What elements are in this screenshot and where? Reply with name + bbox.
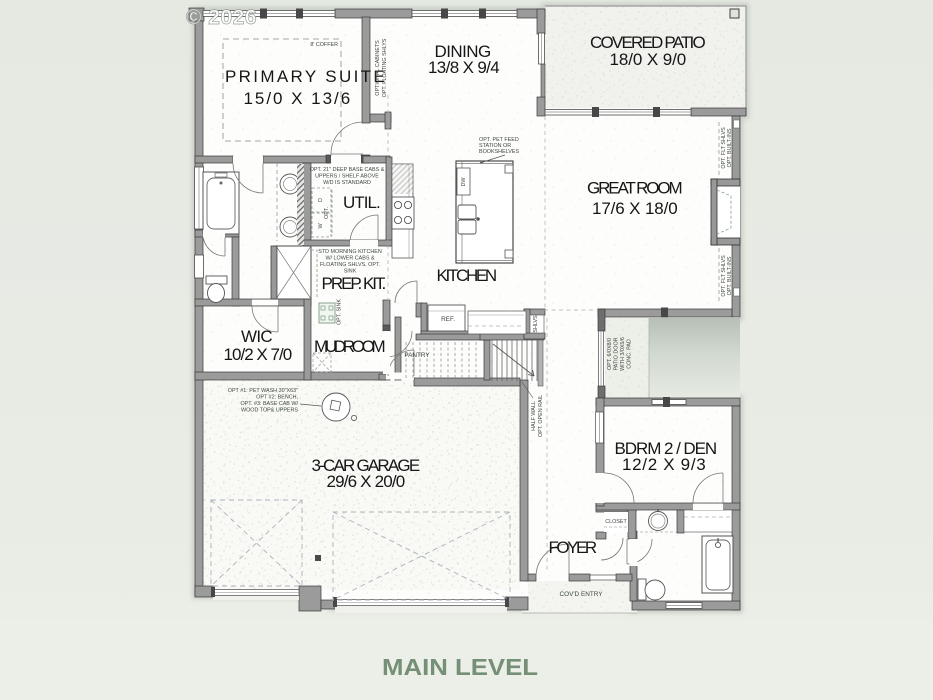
svg-text:D: D: [318, 198, 324, 202]
svg-text:PANTRY: PANTRY: [404, 352, 430, 359]
svg-text:COV'D ENTRY: COV'D ENTRY: [559, 591, 603, 598]
svg-text:W/D IS STANDARD: W/D IS STANDARD: [323, 180, 371, 186]
svg-text:OPT. BUILT-INS: OPT. BUILT-INS: [727, 128, 733, 167]
svg-text:OPT. BUILT-INS: OPT. BUILT-INS: [727, 256, 733, 295]
svg-text:FOYER: FOYER: [549, 538, 598, 557]
svg-text:SHLVS: SHLVS: [533, 315, 539, 333]
svg-text:© 2026: © 2026: [186, 6, 257, 29]
svg-text:18/0 X 9/0: 18/0 X 9/0: [610, 50, 687, 69]
svg-text:PATIO DOOR: PATIO DOOR: [614, 337, 620, 370]
svg-text:OPTIONAL CABINETS: OPTIONAL CABINETS: [375, 40, 381, 96]
svg-text:FLOATING SHLVS, OPT.: FLOATING SHLVS, OPT.: [320, 262, 380, 268]
svg-text:WIC: WIC: [241, 327, 273, 346]
svg-text:REF.: REF.: [441, 316, 455, 323]
svg-text:29/6 X 20/0: 29/6 X 20/0: [327, 472, 406, 491]
svg-text:CONC. PAD: CONC. PAD: [627, 339, 633, 369]
svg-text:WOOD TOP& UPPERS: WOOD TOP& UPPERS: [241, 408, 298, 414]
svg-text:BOOKSHELVES: BOOKSHELVES: [479, 149, 519, 155]
svg-text:OPT. FLOATING SHLYS: OPT. FLOATING SHLYS: [382, 38, 388, 97]
svg-text:MUDROOM: MUDROOM: [314, 337, 386, 356]
svg-text:UPPERS / SHELF ABOVE: UPPERS / SHELF ABOVE: [315, 174, 379, 180]
svg-text:SINK: SINK: [344, 269, 357, 275]
svg-text:UTIL.: UTIL.: [343, 193, 381, 212]
svg-text:WITH 3/0X5/6: WITH 3/0X5/6: [620, 337, 626, 371]
svg-text:W/ LOWER CABS &: W/ LOWER CABS &: [325, 256, 375, 262]
svg-text:MAIN LEVEL: MAIN LEVEL: [382, 654, 538, 680]
svg-text:KITCHEN: KITCHEN: [437, 266, 498, 285]
svg-text:OPT #2: BENCH,: OPT #2: BENCH,: [256, 395, 298, 401]
svg-text:8' COFFER: 8' COFFER: [310, 42, 338, 48]
svg-text:10/2 X 7/0: 10/2 X 7/0: [224, 345, 293, 364]
svg-text:CLOSET: CLOSET: [605, 519, 627, 525]
svg-text:HALF WALL: HALF WALL: [531, 401, 537, 431]
svg-text:OPT. SINK: OPT. SINK: [337, 299, 343, 325]
svg-text:OPT #1: PET WASH 30"X63": OPT #1: PET WASH 30"X63": [228, 388, 298, 394]
svg-text:13/8 X 9/4: 13/8 X 9/4: [428, 58, 500, 77]
svg-text:GREAT ROOM: GREAT ROOM: [587, 179, 683, 198]
svg-text:15/0 X 13/6: 15/0 X 13/6: [244, 89, 351, 108]
svg-text:OPT. 21" DEEP BASE CABS &: OPT. 21" DEEP BASE CABS &: [310, 167, 385, 173]
svg-text:OPT. OPEN RAIL: OPT. OPEN RAIL: [538, 395, 544, 437]
svg-text:OPT.: OPT.: [324, 207, 330, 219]
svg-text:17/6 X 18/0: 17/6 X 18/0: [592, 199, 678, 218]
svg-text:STD MORNING KITCHEN: STD MORNING KITCHEN: [318, 249, 382, 255]
svg-text:PREP. KIT.: PREP. KIT.: [322, 274, 387, 293]
svg-text:OPT. 6/0X8/0: OPT. 6/0X8/0: [607, 338, 613, 370]
svg-text:12/2 X 9/3: 12/2 X 9/3: [622, 455, 706, 474]
svg-text:OPT. #3: BASE CAB W/: OPT. #3: BASE CAB W/: [240, 401, 298, 407]
svg-text:DW: DW: [461, 177, 467, 187]
svg-text:PRIMARY SUITE: PRIMARY SUITE: [225, 67, 385, 86]
